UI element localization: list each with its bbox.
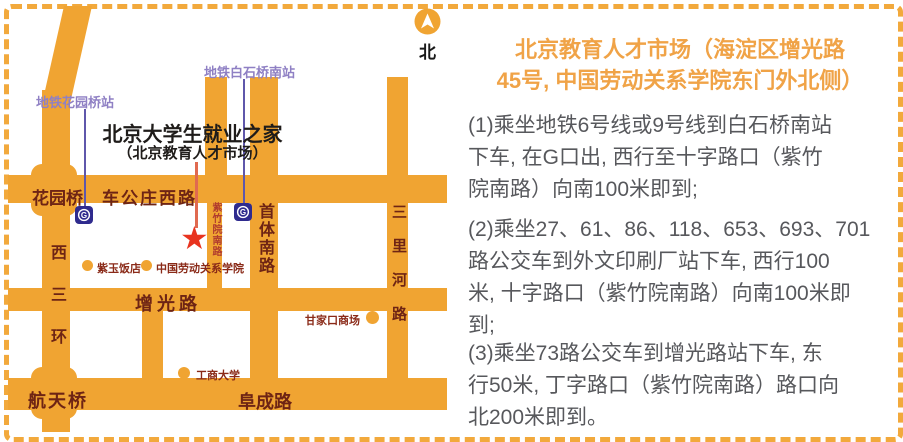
poi-label-business-university: 工商大学 [196, 367, 240, 383]
label-hangtianqiao-bridge: 航天桥 [28, 387, 88, 413]
panel-title-line1: 北京教育人才市场（海淀区增光路 [468, 34, 892, 65]
north-arrow-icon [414, 8, 441, 35]
road-zengguang [8, 288, 447, 311]
label-metro-baishiqiao-south: 地铁白石桥南站 [204, 62, 295, 81]
directions-bus73-line2: 行50米, 丁字路口（紫竹院南路）路口向 [468, 370, 898, 402]
label-metro-huayuanqiao: 地铁花园桥站 [36, 92, 114, 111]
map-area: 地铁花园桥站 地铁白石桥南站 G G 北京大学生就业之家 （北京教育人才市场） … [0, 0, 455, 442]
directions-bus-line2: 路公交车到外文印刷厂站下车, 西行100 [468, 246, 898, 278]
label-zizhuyuan-south-road: 紫竹院南路 [209, 202, 221, 257]
svg-text:G: G [81, 211, 87, 220]
directions-bus-line1: (2)乘坐27、61、86、118、653、693、701 [468, 214, 898, 246]
label-zengguang-road: 增光路 [135, 290, 201, 316]
directions-bus73: (3)乘坐73路公交车到增光路站下车, 东 行50米, 丁字路口（紫竹院南路）路… [468, 338, 898, 434]
poi-label-ziyu-hotel: 紫玉饭店 [97, 260, 141, 276]
panel-title-line2: 45号, 中国劳动关系学院东门外北侧） [468, 65, 892, 96]
label-sanlihe-road: 三里河路 [389, 204, 407, 340]
directions-subway-line3: 院南路）向南100米即到; [468, 174, 898, 206]
label-xisanhuan-road: 西三环 [47, 244, 65, 370]
panel-title: 北京教育人才市场（海淀区增光路 45号, 中国劳动关系学院东门外北侧） [468, 34, 892, 96]
poi-dot-ziyu-hotel [82, 260, 93, 271]
svg-text:G: G [240, 208, 246, 217]
poi-label-labor-college: 中国劳动关系学院 [156, 260, 244, 276]
north-label: 北 [419, 38, 436, 63]
label-shouti-south-road: 首体南路 [255, 203, 273, 275]
poi-label-ganjiakou-mall: 甘家口商场 [305, 312, 360, 328]
screenshot-root: 地铁花园桥站 地铁白石桥南站 G G 北京大学生就业之家 （北京教育人才市场） … [0, 0, 903, 442]
poi-dot-ganjiakou-mall [366, 311, 379, 324]
directions-subway-line2: 下车, 在G口出, 西行至十字路口（紫竹 [468, 142, 898, 174]
directions-subway-line1: (1)乘坐地铁6号线或9号线到白石桥南站 [468, 110, 898, 142]
location-star-icon: ★ [180, 222, 209, 254]
leader-line-huayuanqiao-station [84, 109, 86, 208]
map-subtitle: （北京教育人才市场） [95, 142, 290, 163]
directions-bus: (2)乘坐27、61、86、118、653、693、701 路公交车到外文印刷厂… [468, 214, 898, 342]
label-chegongzhuang-west: 车公庄西路 [102, 184, 197, 209]
directions-bus73-line3: 北200米即到。 [468, 402, 898, 434]
directions-bus-line3: 米, 十字路口（紫竹院南路）向南100米即 [468, 278, 898, 310]
label-huayuanqiao-bridge: 花园桥 [32, 184, 83, 209]
poi-dot-labor-college [141, 260, 152, 271]
directions-subway: (1)乘坐地铁6号线或9号线到白石桥南站 下车, 在G口出, 西行至十字路口（紫… [468, 110, 898, 206]
poi-dot-business-university [178, 367, 190, 379]
directions-bus73-line1: (3)乘坐73路公交车到增光路站下车, 东 [468, 338, 898, 370]
label-fucheng-road: 阜成路 [238, 388, 292, 414]
metro-icon-baishiqiao-south: G [234, 203, 252, 221]
